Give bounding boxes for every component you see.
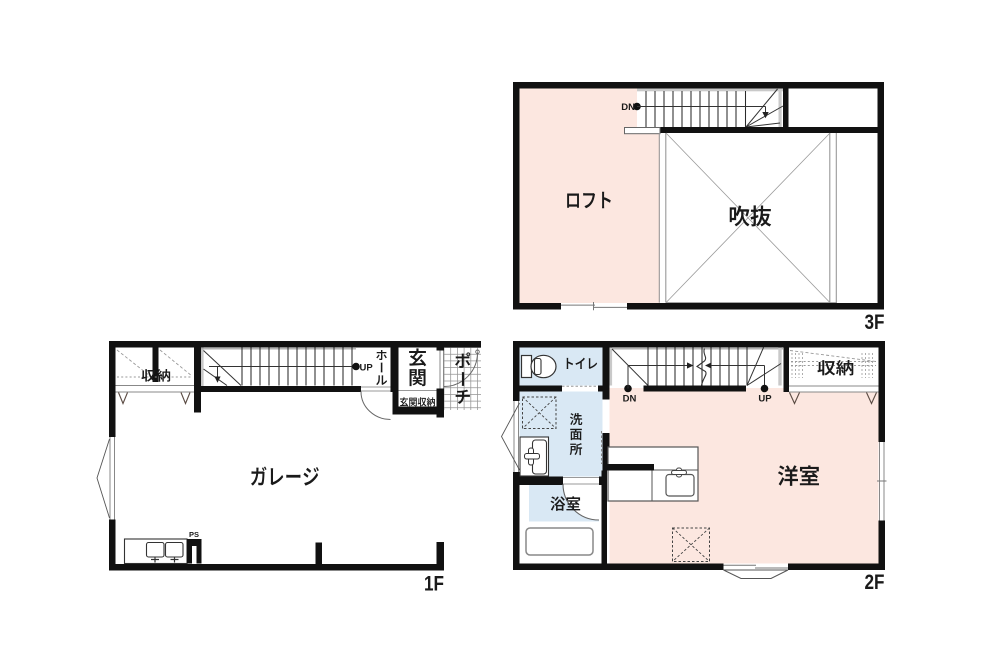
svg-text:3F: 3F [865,310,885,334]
svg-text:UP: UP [758,394,772,405]
svg-text:2F: 2F [865,570,885,594]
svg-text:DN: DN [623,394,637,405]
svg-text:ポ: ポ [454,347,471,372]
svg-text:所: 所 [569,439,582,458]
svg-text:収納: 収納 [817,355,855,379]
svg-text:ガレージ: ガレージ [250,460,320,491]
svg-text:浴室: 浴室 [550,492,581,514]
svg-text:1F: 1F [424,572,444,596]
svg-text:トイレ: トイレ [563,353,598,373]
svg-text:収納: 収納 [141,365,171,385]
svg-text:ロフト: ロフト [565,184,613,213]
svg-text:関: 関 [408,363,427,390]
svg-text:洋室: 洋室 [777,459,820,491]
svg-text:ル: ル [375,371,387,388]
svg-text:DN: DN [621,102,635,113]
svg-text:吹抜: 吹抜 [728,199,772,231]
svg-text:PS: PS [189,530,199,539]
svg-text:玄関収納: 玄関収納 [400,394,436,408]
svg-text:チ: チ [454,383,471,408]
svg-text:UP: UP [360,363,374,374]
